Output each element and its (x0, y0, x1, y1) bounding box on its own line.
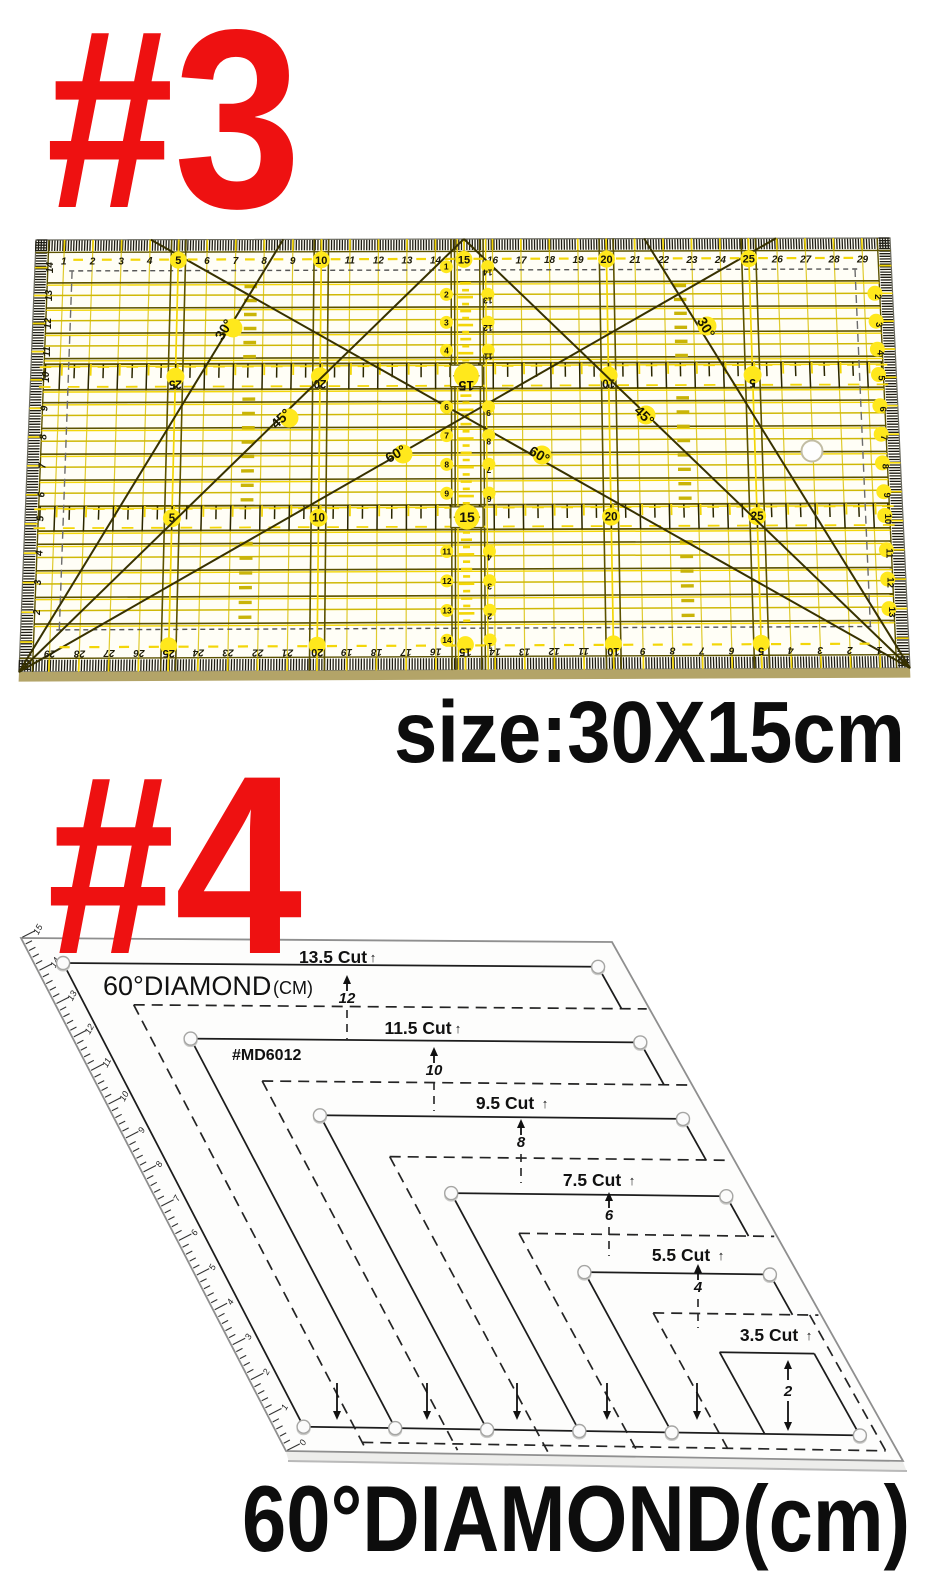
svg-text:20: 20 (600, 254, 612, 266)
svg-text:5: 5 (758, 644, 764, 656)
svg-text:29: 29 (856, 254, 869, 265)
svg-text:20: 20 (311, 646, 323, 658)
svg-text:7: 7 (878, 435, 889, 440)
svg-text:10: 10 (315, 255, 327, 267)
svg-text:5: 5 (749, 376, 756, 388)
svg-text:7: 7 (699, 645, 705, 656)
svg-text:13: 13 (519, 645, 531, 656)
svg-text:5.5 Cut: 5.5 Cut (652, 1245, 711, 1265)
svg-text:22: 22 (252, 647, 265, 658)
svg-text:5: 5 (36, 515, 47, 521)
svg-text:2: 2 (872, 294, 883, 299)
svg-text:12: 12 (339, 990, 356, 1007)
svg-text:15: 15 (459, 646, 471, 658)
svg-text:3: 3 (487, 582, 492, 592)
svg-text:5: 5 (876, 375, 887, 381)
svg-text:9: 9 (444, 488, 449, 498)
svg-text:13: 13 (44, 290, 55, 302)
svg-text:10: 10 (312, 513, 325, 525)
svg-text:23: 23 (685, 255, 698, 266)
svg-text:27: 27 (799, 255, 812, 266)
svg-text:12: 12 (548, 645, 560, 656)
svg-text:10: 10 (607, 645, 619, 657)
svg-text:↑: ↑ (455, 1021, 462, 1036)
svg-text:13: 13 (401, 256, 413, 267)
svg-text:11: 11 (883, 548, 894, 559)
svg-text:↑: ↑ (370, 950, 377, 965)
svg-text:4: 4 (693, 1279, 703, 1296)
svg-text:28: 28 (828, 255, 841, 266)
svg-text:9: 9 (881, 493, 892, 498)
svg-text:8: 8 (669, 645, 675, 656)
svg-text:10: 10 (426, 1062, 443, 1079)
svg-text:13: 13 (442, 606, 452, 616)
svg-text:11: 11 (483, 351, 492, 361)
svg-text:12: 12 (373, 256, 385, 267)
svg-text:3: 3 (873, 322, 884, 327)
svg-text:9: 9 (640, 645, 646, 656)
svg-text:2: 2 (487, 611, 492, 621)
svg-text:13.5 Cut: 13.5 Cut (299, 947, 367, 967)
svg-text:2: 2 (32, 609, 43, 616)
svg-text:17: 17 (515, 255, 527, 266)
svg-text:12: 12 (43, 317, 54, 329)
svg-text:2: 2 (444, 289, 449, 299)
svg-text:7: 7 (444, 431, 449, 441)
svg-text:10: 10 (41, 371, 52, 383)
svg-text:25: 25 (743, 254, 755, 266)
svg-text:20: 20 (605, 512, 618, 524)
svg-text:13: 13 (483, 295, 493, 305)
svg-text:8: 8 (39, 434, 50, 440)
svg-text:9.5 Cut: 9.5 Cut (476, 1093, 535, 1113)
svg-text:1: 1 (444, 262, 449, 272)
svg-text:4: 4 (34, 550, 45, 557)
svg-text:7: 7 (38, 463, 49, 469)
svg-text:26: 26 (133, 647, 146, 658)
svg-text:↑: ↑ (542, 1096, 549, 1111)
svg-text:4: 4 (444, 345, 449, 355)
svg-text:25: 25 (163, 647, 175, 659)
svg-text:19: 19 (572, 255, 584, 266)
svg-text:18: 18 (371, 646, 383, 657)
svg-text:8: 8 (444, 459, 449, 469)
svg-text:22: 22 (657, 255, 670, 266)
svg-text:27: 27 (103, 647, 116, 658)
svg-text:4: 4 (788, 644, 795, 655)
svg-text:9: 9 (486, 408, 491, 418)
svg-text:#MD6012: #MD6012 (232, 1047, 301, 1064)
svg-text:9: 9 (40, 405, 51, 411)
svg-text:29: 29 (44, 647, 57, 658)
svg-text:7: 7 (486, 465, 491, 475)
svg-text:6: 6 (486, 494, 491, 504)
svg-text:7.5 Cut: 7.5 Cut (563, 1170, 622, 1190)
svg-text:21: 21 (628, 255, 641, 266)
svg-text:17: 17 (400, 646, 412, 657)
svg-text:10: 10 (882, 514, 893, 525)
svg-text:16: 16 (430, 646, 442, 657)
svg-text:4: 4 (487, 552, 492, 562)
svg-text:8: 8 (880, 464, 891, 469)
svg-text:19: 19 (341, 646, 353, 657)
svg-text:12: 12 (483, 323, 493, 333)
svg-text:↑: ↑ (718, 1248, 725, 1263)
svg-text:2: 2 (847, 644, 854, 655)
svg-text:11.5 Cut: 11.5 Cut (384, 1018, 451, 1038)
svg-text:6: 6 (728, 644, 734, 655)
svg-text:1: 1 (487, 641, 492, 651)
svg-text:6: 6 (605, 1207, 614, 1224)
svg-text:↑: ↑ (629, 1173, 636, 1188)
svg-text:18: 18 (544, 255, 556, 266)
svg-text:3: 3 (817, 644, 823, 655)
svg-text:6: 6 (444, 402, 449, 412)
svg-text:3: 3 (33, 579, 44, 585)
svg-text:11: 11 (42, 346, 53, 357)
svg-text:14: 14 (483, 268, 493, 278)
svg-text:11: 11 (442, 547, 451, 557)
svg-text:↑: ↑ (806, 1328, 813, 1343)
svg-text:24: 24 (714, 255, 727, 266)
svg-text:4: 4 (874, 350, 885, 356)
svg-text:6: 6 (877, 407, 888, 412)
svg-text:15: 15 (31, 922, 45, 936)
svg-text:21: 21 (282, 646, 295, 657)
svg-text:8: 8 (486, 437, 491, 447)
svg-text:25: 25 (168, 378, 181, 390)
svg-text:14: 14 (442, 635, 452, 645)
svg-text:23: 23 (222, 647, 235, 658)
svg-text:26: 26 (771, 255, 784, 266)
svg-text:15: 15 (458, 378, 474, 394)
svg-text:3: 3 (444, 317, 449, 327)
svg-text:15: 15 (459, 509, 475, 525)
svg-text:3.5 Cut: 3.5 Cut (740, 1325, 799, 1345)
svg-text:6: 6 (36, 491, 47, 497)
svg-text:12: 12 (885, 577, 896, 588)
svg-text:8: 8 (517, 1134, 526, 1151)
svg-text:28: 28 (74, 647, 87, 658)
svg-text:24: 24 (192, 647, 205, 658)
svg-text:15: 15 (458, 254, 470, 266)
svg-text:1: 1 (876, 644, 882, 655)
svg-text:11: 11 (578, 645, 589, 656)
svg-text:14: 14 (430, 256, 442, 267)
svg-text:14: 14 (45, 262, 56, 274)
svg-text:12: 12 (442, 576, 452, 586)
svg-text:13: 13 (886, 607, 897, 618)
svg-text:11: 11 (345, 256, 356, 267)
svg-text:2: 2 (783, 1383, 793, 1400)
